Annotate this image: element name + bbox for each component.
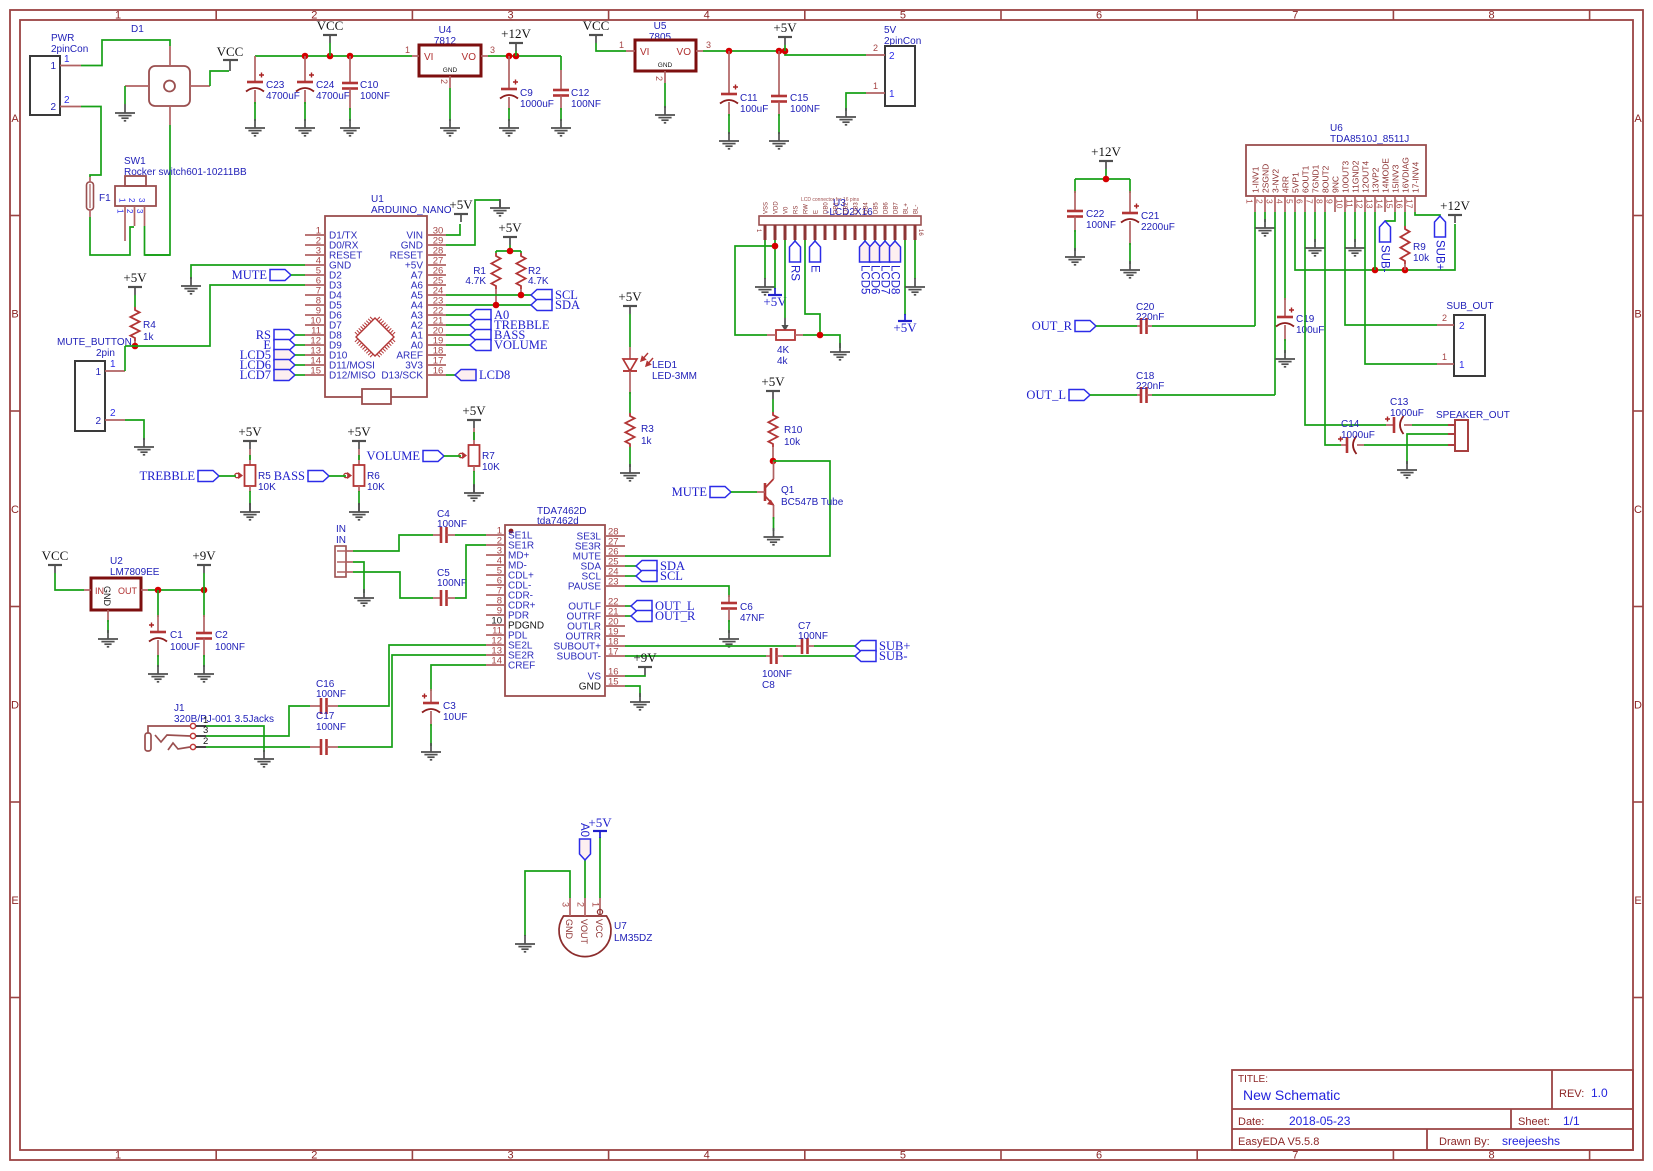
svg-text:DB2: DB2 xyxy=(844,202,850,214)
svg-text:BL-: BL- xyxy=(914,205,920,214)
svg-text:ARDUINO_NANO: ARDUINO_NANO xyxy=(371,205,452,216)
svg-text:5: 5 xyxy=(900,10,906,22)
svg-text:OUT_R: OUT_R xyxy=(1032,319,1073,333)
svg-text:VCC: VCC xyxy=(583,18,610,33)
svg-text:LM7809EE: LM7809EE xyxy=(110,567,160,578)
svg-text:D: D xyxy=(1634,699,1642,711)
svg-text:100NF: 100NF xyxy=(437,578,467,589)
svg-text:VI: VI xyxy=(640,47,649,58)
svg-text:1: 1 xyxy=(95,367,101,378)
svg-text:R3: R3 xyxy=(641,424,654,435)
svg-text:+9V: +9V xyxy=(192,548,216,563)
svg-text:SW1: SW1 xyxy=(124,156,146,167)
svg-text:7GND1: 7GND1 xyxy=(1311,164,1321,193)
svg-text:CREF: CREF xyxy=(508,661,535,672)
svg-text:TREBBLE: TREBBLE xyxy=(139,469,195,483)
svg-text:VOLUME: VOLUME xyxy=(367,449,421,463)
svg-text:16: 16 xyxy=(1395,199,1405,209)
svg-text:14: 14 xyxy=(1375,199,1385,209)
svg-text:E: E xyxy=(809,265,821,273)
svg-text:6: 6 xyxy=(1295,199,1305,204)
svg-text:E: E xyxy=(1634,895,1641,907)
svg-text:2: 2 xyxy=(1442,313,1447,323)
svg-text:DB5: DB5 xyxy=(874,202,880,214)
svg-text:100NF: 100NF xyxy=(360,91,390,102)
svg-text:C1: C1 xyxy=(170,630,183,641)
svg-text:17: 17 xyxy=(608,647,619,658)
svg-text:Q1: Q1 xyxy=(781,485,795,496)
svg-text:F1: F1 xyxy=(99,193,111,204)
svg-text:E: E xyxy=(11,895,18,907)
svg-text:7: 7 xyxy=(1292,10,1298,22)
svg-text:+5V: +5V xyxy=(238,424,262,439)
svg-text:9NC: 9NC xyxy=(1331,176,1341,193)
svg-text:VO: VO xyxy=(462,52,477,63)
svg-text:1: 1 xyxy=(1442,352,1447,362)
svg-text:2018-05-23: 2018-05-23 xyxy=(1289,1114,1351,1128)
svg-text:1-INV1: 1-INV1 xyxy=(1251,166,1261,193)
svg-text:OUT_R: OUT_R xyxy=(655,609,696,623)
svg-text:7: 7 xyxy=(1292,1150,1298,1162)
svg-text:1: 1 xyxy=(873,81,878,91)
svg-text:4RR: 4RR xyxy=(1281,176,1291,193)
svg-text:1/1: 1/1 xyxy=(1563,1114,1580,1128)
svg-text:5: 5 xyxy=(1285,199,1295,204)
svg-text:1: 1 xyxy=(405,45,410,55)
svg-text:D12/MISO: D12/MISO xyxy=(329,371,376,382)
svg-text:3: 3 xyxy=(135,209,144,214)
svg-text:D1: D1 xyxy=(131,24,144,35)
svg-text:U7: U7 xyxy=(614,921,627,932)
svg-text:SUBOUT-: SUBOUT- xyxy=(557,652,601,663)
svg-text:10UF: 10UF xyxy=(443,712,467,723)
svg-text:5: 5 xyxy=(900,1150,906,1162)
svg-text:C22: C22 xyxy=(1086,209,1105,220)
svg-text:1: 1 xyxy=(64,54,70,65)
svg-text:R10: R10 xyxy=(784,425,803,436)
svg-text:sreejeeshs: sreejeeshs xyxy=(1502,1134,1560,1148)
svg-text:11: 11 xyxy=(1345,199,1355,208)
svg-text:+12V: +12V xyxy=(501,26,531,41)
svg-text:5V: 5V xyxy=(884,25,897,36)
svg-text:12OUT4: 12OUT4 xyxy=(1361,161,1371,193)
svg-text:VCC: VCC xyxy=(594,919,604,939)
svg-text:2pinCon: 2pinCon xyxy=(51,44,88,55)
svg-text:SUB-: SUB- xyxy=(1379,245,1391,273)
svg-text:1000uF: 1000uF xyxy=(1341,430,1375,441)
svg-text:7: 7 xyxy=(1305,199,1315,204)
svg-text:+5V: +5V xyxy=(893,320,917,335)
svg-text:4: 4 xyxy=(704,1150,710,1162)
svg-text:C8: C8 xyxy=(762,680,775,691)
svg-text:PWR: PWR xyxy=(51,33,74,44)
svg-text:1000uF: 1000uF xyxy=(1390,408,1424,419)
svg-text:8: 8 xyxy=(1488,1150,1494,1162)
svg-text:12: 12 xyxy=(1355,199,1365,209)
svg-text:100NF: 100NF xyxy=(316,722,346,733)
svg-text:2: 2 xyxy=(654,76,664,81)
svg-text:4.7K: 4.7K xyxy=(528,276,549,287)
svg-text:LCD8: LCD8 xyxy=(479,368,510,382)
svg-text:10K: 10K xyxy=(367,482,385,493)
svg-text:SUB+: SUB+ xyxy=(1434,240,1446,271)
svg-text:+9V: +9V xyxy=(633,650,657,665)
svg-text:16VDIAG: 16VDIAG xyxy=(1401,157,1411,193)
svg-text:R9: R9 xyxy=(1413,242,1426,253)
svg-text:1: 1 xyxy=(1245,199,1255,204)
svg-text:C14: C14 xyxy=(1341,419,1360,430)
svg-text:VOLUME: VOLUME xyxy=(494,338,548,352)
svg-text:OUT: OUT xyxy=(118,586,138,596)
svg-text:+12V: +12V xyxy=(1440,198,1470,213)
svg-text:100UF: 100UF xyxy=(170,642,200,653)
svg-text:4K: 4K xyxy=(777,345,790,356)
svg-text:11GND2: 11GND2 xyxy=(1351,160,1361,193)
svg-text:C23: C23 xyxy=(266,80,285,91)
svg-text:SCL: SCL xyxy=(660,569,683,583)
svg-text:C2: C2 xyxy=(215,630,228,641)
svg-text:D: D xyxy=(11,699,19,711)
svg-text:C: C xyxy=(11,504,19,516)
svg-text:RS: RS xyxy=(789,265,801,281)
svg-text:1: 1 xyxy=(115,10,121,22)
svg-text:+5V: +5V xyxy=(761,374,785,389)
svg-text:14MODE: 14MODE xyxy=(1381,158,1391,193)
svg-text:+5V: +5V xyxy=(449,197,473,212)
svg-text:C9: C9 xyxy=(520,88,533,99)
svg-text:C6: C6 xyxy=(740,602,753,613)
svg-text:GND: GND xyxy=(443,67,458,74)
svg-text:DB4: DB4 xyxy=(864,202,870,214)
svg-text:2: 2 xyxy=(1255,199,1265,204)
svg-text:R6: R6 xyxy=(367,471,380,482)
svg-text:2SGND: 2SGND xyxy=(1261,164,1271,193)
svg-text:BL+: BL+ xyxy=(904,203,910,214)
svg-text:VCC: VCC xyxy=(42,548,69,563)
svg-text:A: A xyxy=(11,113,19,125)
svg-text:+12V: +12V xyxy=(1091,144,1121,159)
svg-text:C12: C12 xyxy=(571,88,590,99)
svg-text:R7: R7 xyxy=(482,451,495,462)
svg-text:10: 10 xyxy=(1335,199,1345,209)
svg-text:TITLE:: TITLE: xyxy=(1238,1074,1268,1085)
svg-text:3-NV2: 3-NV2 xyxy=(1271,169,1281,193)
svg-text:1k: 1k xyxy=(143,332,155,343)
svg-text:15: 15 xyxy=(310,366,321,377)
svg-text:2: 2 xyxy=(203,736,208,747)
svg-text:+5V: +5V xyxy=(123,270,147,285)
svg-text:100uF: 100uF xyxy=(740,104,768,115)
svg-text:V0: V0 xyxy=(784,206,790,214)
svg-text:2: 2 xyxy=(125,209,134,214)
svg-text:8: 8 xyxy=(1315,199,1325,204)
svg-text:15: 15 xyxy=(1385,199,1395,209)
svg-text:C3: C3 xyxy=(443,701,456,712)
svg-text:16: 16 xyxy=(433,366,444,377)
svg-text:10K: 10K xyxy=(482,462,500,473)
svg-text:SDA: SDA xyxy=(555,298,580,312)
svg-text:220nF: 220nF xyxy=(1136,312,1164,323)
svg-text:2: 2 xyxy=(311,1150,317,1162)
svg-text:1k: 1k xyxy=(641,436,653,447)
svg-text:GND: GND xyxy=(579,682,601,693)
svg-text:320B/PJ-001 3.5Jacks: 320B/PJ-001 3.5Jacks xyxy=(174,714,274,725)
svg-text:3: 3 xyxy=(1265,199,1275,204)
svg-text:EasyEDA V5.5.8: EasyEDA V5.5.8 xyxy=(1238,1136,1319,1148)
svg-text:100NF: 100NF xyxy=(1086,220,1116,231)
svg-text:10k: 10k xyxy=(1413,253,1430,264)
svg-text:SUB_OUT: SUB_OUT xyxy=(1446,301,1493,312)
svg-text:3: 3 xyxy=(706,40,711,50)
svg-text:VOUT: VOUT xyxy=(579,919,589,945)
svg-text:C13: C13 xyxy=(1390,397,1409,408)
svg-text:U5: U5 xyxy=(654,21,667,32)
svg-text:LCD8: LCD8 xyxy=(889,265,901,294)
svg-text:9: 9 xyxy=(1325,199,1335,204)
svg-text:BC547B Tube: BC547B Tube xyxy=(781,497,844,508)
svg-text:2: 2 xyxy=(889,51,895,62)
svg-text:TDA8510J_8511J: TDA8510J_8511J xyxy=(1330,134,1409,145)
svg-text:3: 3 xyxy=(507,10,513,22)
svg-text:17-INV4: 17-INV4 xyxy=(1411,162,1421,193)
svg-text:J1: J1 xyxy=(174,703,185,714)
svg-text:+5V: +5V xyxy=(763,294,787,309)
svg-text:15: 15 xyxy=(608,677,619,688)
svg-text:2: 2 xyxy=(127,198,136,203)
svg-text:100NF: 100NF xyxy=(790,104,820,115)
svg-text:New Schematic: New Schematic xyxy=(1243,1087,1340,1103)
svg-text:U6: U6 xyxy=(1330,123,1343,134)
svg-text:100NF: 100NF xyxy=(571,99,601,110)
svg-text:+5V: +5V xyxy=(618,289,642,304)
svg-text:Sheet:: Sheet: xyxy=(1518,1116,1550,1128)
svg-text:SUB-: SUB- xyxy=(879,649,907,663)
svg-text:15INV3: 15INV3 xyxy=(1391,164,1401,193)
svg-text:C15: C15 xyxy=(790,93,809,104)
svg-text:MUTE: MUTE xyxy=(232,268,268,282)
svg-text:LM35DZ: LM35DZ xyxy=(614,933,652,944)
svg-text:B: B xyxy=(11,308,18,320)
svg-text:LCD7: LCD7 xyxy=(240,368,271,382)
svg-text:Drawn By:: Drawn By: xyxy=(1439,1136,1490,1148)
svg-text:1: 1 xyxy=(591,902,601,907)
svg-text:3: 3 xyxy=(507,1150,513,1162)
svg-text:VSS: VSS xyxy=(764,202,770,214)
svg-text:MUTE_BUTTON: MUTE_BUTTON xyxy=(57,337,132,348)
svg-text:E: E xyxy=(814,210,820,214)
svg-text:100uF: 100uF xyxy=(1296,325,1324,336)
svg-text:R5: R5 xyxy=(258,471,271,482)
svg-text:U2: U2 xyxy=(110,556,123,567)
svg-text:10K: 10K xyxy=(258,482,276,493)
svg-text:U1: U1 xyxy=(371,194,384,205)
svg-text:6OUT1: 6OUT1 xyxy=(1301,165,1311,193)
svg-text:A: A xyxy=(1634,113,1642,125)
svg-text:+5V: +5V xyxy=(347,424,371,439)
svg-text:1: 1 xyxy=(1459,360,1465,371)
svg-text:4.7K: 4.7K xyxy=(465,276,486,287)
svg-text:DB7: DB7 xyxy=(894,202,900,214)
svg-text:1: 1 xyxy=(110,359,116,370)
svg-text:DB6: DB6 xyxy=(884,202,890,214)
svg-text:GND: GND xyxy=(658,62,673,69)
svg-text:1000uF: 1000uF xyxy=(520,99,554,110)
svg-text:4: 4 xyxy=(704,10,710,22)
svg-text:DB1: DB1 xyxy=(834,202,840,214)
svg-text:DB0: DB0 xyxy=(824,202,830,214)
svg-text:100NF: 100NF xyxy=(316,689,346,700)
svg-text:U4: U4 xyxy=(439,25,452,36)
svg-text:13: 13 xyxy=(1365,199,1375,209)
svg-text:100NF: 100NF xyxy=(437,519,467,530)
svg-text:100NF: 100NF xyxy=(798,631,828,642)
svg-text:2200uF: 2200uF xyxy=(1141,222,1175,233)
svg-text:23: 23 xyxy=(608,577,619,588)
svg-text:6: 6 xyxy=(1096,1150,1102,1162)
svg-text:C11: C11 xyxy=(740,93,758,104)
svg-text:C21: C21 xyxy=(1141,211,1160,222)
svg-text:GND: GND xyxy=(102,586,112,607)
svg-text:DB3: DB3 xyxy=(854,202,860,214)
svg-text:MUTE: MUTE xyxy=(672,485,708,499)
svg-text:+5V: +5V xyxy=(462,403,486,418)
svg-text:3: 3 xyxy=(490,45,495,55)
svg-text:220nF: 220nF xyxy=(1136,381,1164,392)
svg-text:1: 1 xyxy=(115,1150,121,1162)
svg-text:6: 6 xyxy=(1096,10,1102,22)
svg-text:LCD connector for 16 pins: LCD connector for 16 pins xyxy=(801,197,860,203)
svg-text:47NF: 47NF xyxy=(740,613,764,624)
svg-text:REV:: REV: xyxy=(1559,1088,1584,1100)
svg-text:Date:: Date: xyxy=(1238,1116,1264,1128)
svg-text:4k: 4k xyxy=(777,356,789,367)
svg-text:2: 2 xyxy=(873,43,878,53)
svg-text:SPEAKER_OUT: SPEAKER_OUT xyxy=(1436,410,1510,421)
svg-text:VI: VI xyxy=(424,52,433,63)
svg-text:100NF: 100NF xyxy=(762,669,792,680)
svg-text:5VP1: 5VP1 xyxy=(1291,172,1301,193)
svg-text:RW: RW xyxy=(804,204,810,214)
svg-text:13VP2: 13VP2 xyxy=(1371,167,1381,193)
svg-text:LED-3MM: LED-3MM xyxy=(652,371,697,382)
svg-text:4700uF: 4700uF xyxy=(316,91,350,102)
svg-text:8: 8 xyxy=(1488,10,1494,22)
svg-text:VO: VO xyxy=(677,47,692,58)
svg-text:B: B xyxy=(1634,308,1641,320)
svg-text:BASS: BASS xyxy=(274,469,305,483)
svg-text:R4: R4 xyxy=(143,320,156,331)
svg-text:RS: RS xyxy=(794,206,800,214)
svg-text:100NF: 100NF xyxy=(215,642,245,653)
svg-text:LED1: LED1 xyxy=(652,360,677,371)
svg-text:10k: 10k xyxy=(784,437,801,448)
svg-text:C: C xyxy=(1634,504,1642,516)
svg-text:2pin: 2pin xyxy=(96,348,115,359)
svg-text:4: 4 xyxy=(1275,199,1285,204)
svg-text:IN: IN xyxy=(336,524,346,535)
svg-text:1: 1 xyxy=(116,209,125,214)
svg-text:C17: C17 xyxy=(316,711,335,722)
svg-text:C24: C24 xyxy=(316,80,335,91)
svg-text:+5V: +5V xyxy=(588,815,612,830)
svg-text:2: 2 xyxy=(576,902,586,907)
svg-text:1: 1 xyxy=(118,198,127,203)
svg-text:16: 16 xyxy=(917,229,923,236)
svg-text:IN: IN xyxy=(336,535,346,546)
svg-text:1: 1 xyxy=(889,89,895,100)
svg-text:+5V: +5V xyxy=(773,20,797,35)
svg-text:14: 14 xyxy=(491,656,502,667)
svg-text:GND: GND xyxy=(564,919,574,940)
svg-text:2: 2 xyxy=(95,416,101,427)
svg-text:1.0: 1.0 xyxy=(1591,1086,1608,1100)
svg-text:3: 3 xyxy=(137,198,146,203)
svg-text:1: 1 xyxy=(50,61,56,72)
svg-text:VCC: VCC xyxy=(217,44,244,59)
svg-text:2: 2 xyxy=(50,102,56,113)
svg-text:2: 2 xyxy=(110,408,116,419)
svg-text:4700uF: 4700uF xyxy=(266,91,300,102)
svg-text:2: 2 xyxy=(1459,321,1465,332)
svg-text:+5V: +5V xyxy=(498,220,522,235)
svg-text:VDD: VDD xyxy=(774,201,780,214)
svg-text:VCC: VCC xyxy=(317,18,344,33)
svg-text:2: 2 xyxy=(64,95,70,106)
svg-text:C10: C10 xyxy=(360,80,379,91)
svg-text:D13/SCK: D13/SCK xyxy=(381,371,423,382)
svg-text:2: 2 xyxy=(439,79,449,84)
svg-text:1: 1 xyxy=(619,40,624,50)
svg-text:OUT_L: OUT_L xyxy=(1026,388,1066,402)
svg-text:10OUT3: 10OUT3 xyxy=(1341,161,1351,193)
svg-text:PAUSE: PAUSE xyxy=(568,582,601,593)
svg-text:3: 3 xyxy=(561,902,571,907)
svg-text:8OUT2: 8OUT2 xyxy=(1321,165,1331,193)
svg-text:17: 17 xyxy=(1405,199,1415,209)
